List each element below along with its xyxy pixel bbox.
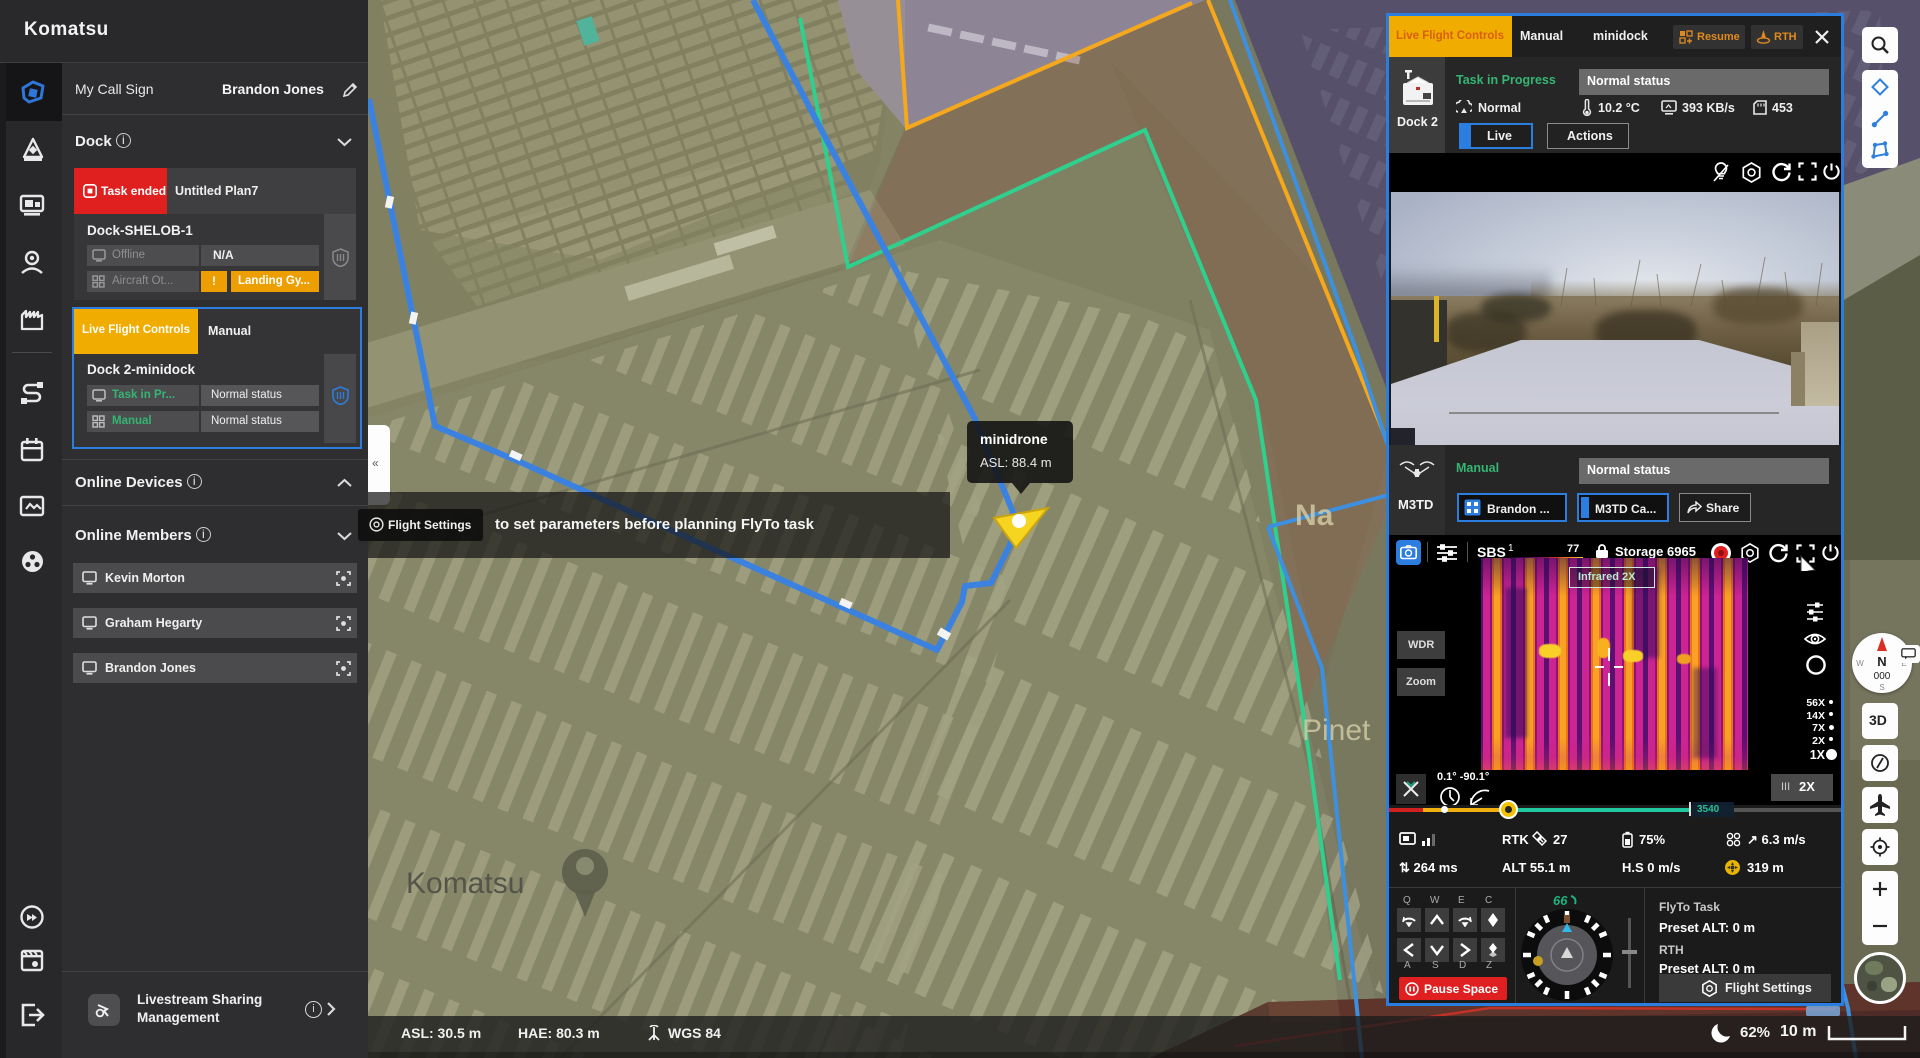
svg-text:Pinet: Pinet xyxy=(1302,714,1371,747)
svg-text:N: N xyxy=(1877,654,1886,669)
svg-text:Na: Na xyxy=(1295,499,1334,532)
svg-text:Komatsu: Komatsu xyxy=(406,867,524,900)
svg-text:000: 000 xyxy=(1874,671,1891,682)
svg-text:66: 66 xyxy=(1553,893,1568,908)
svg-text:S: S xyxy=(1879,683,1884,692)
svg-text:W: W xyxy=(1856,659,1864,668)
